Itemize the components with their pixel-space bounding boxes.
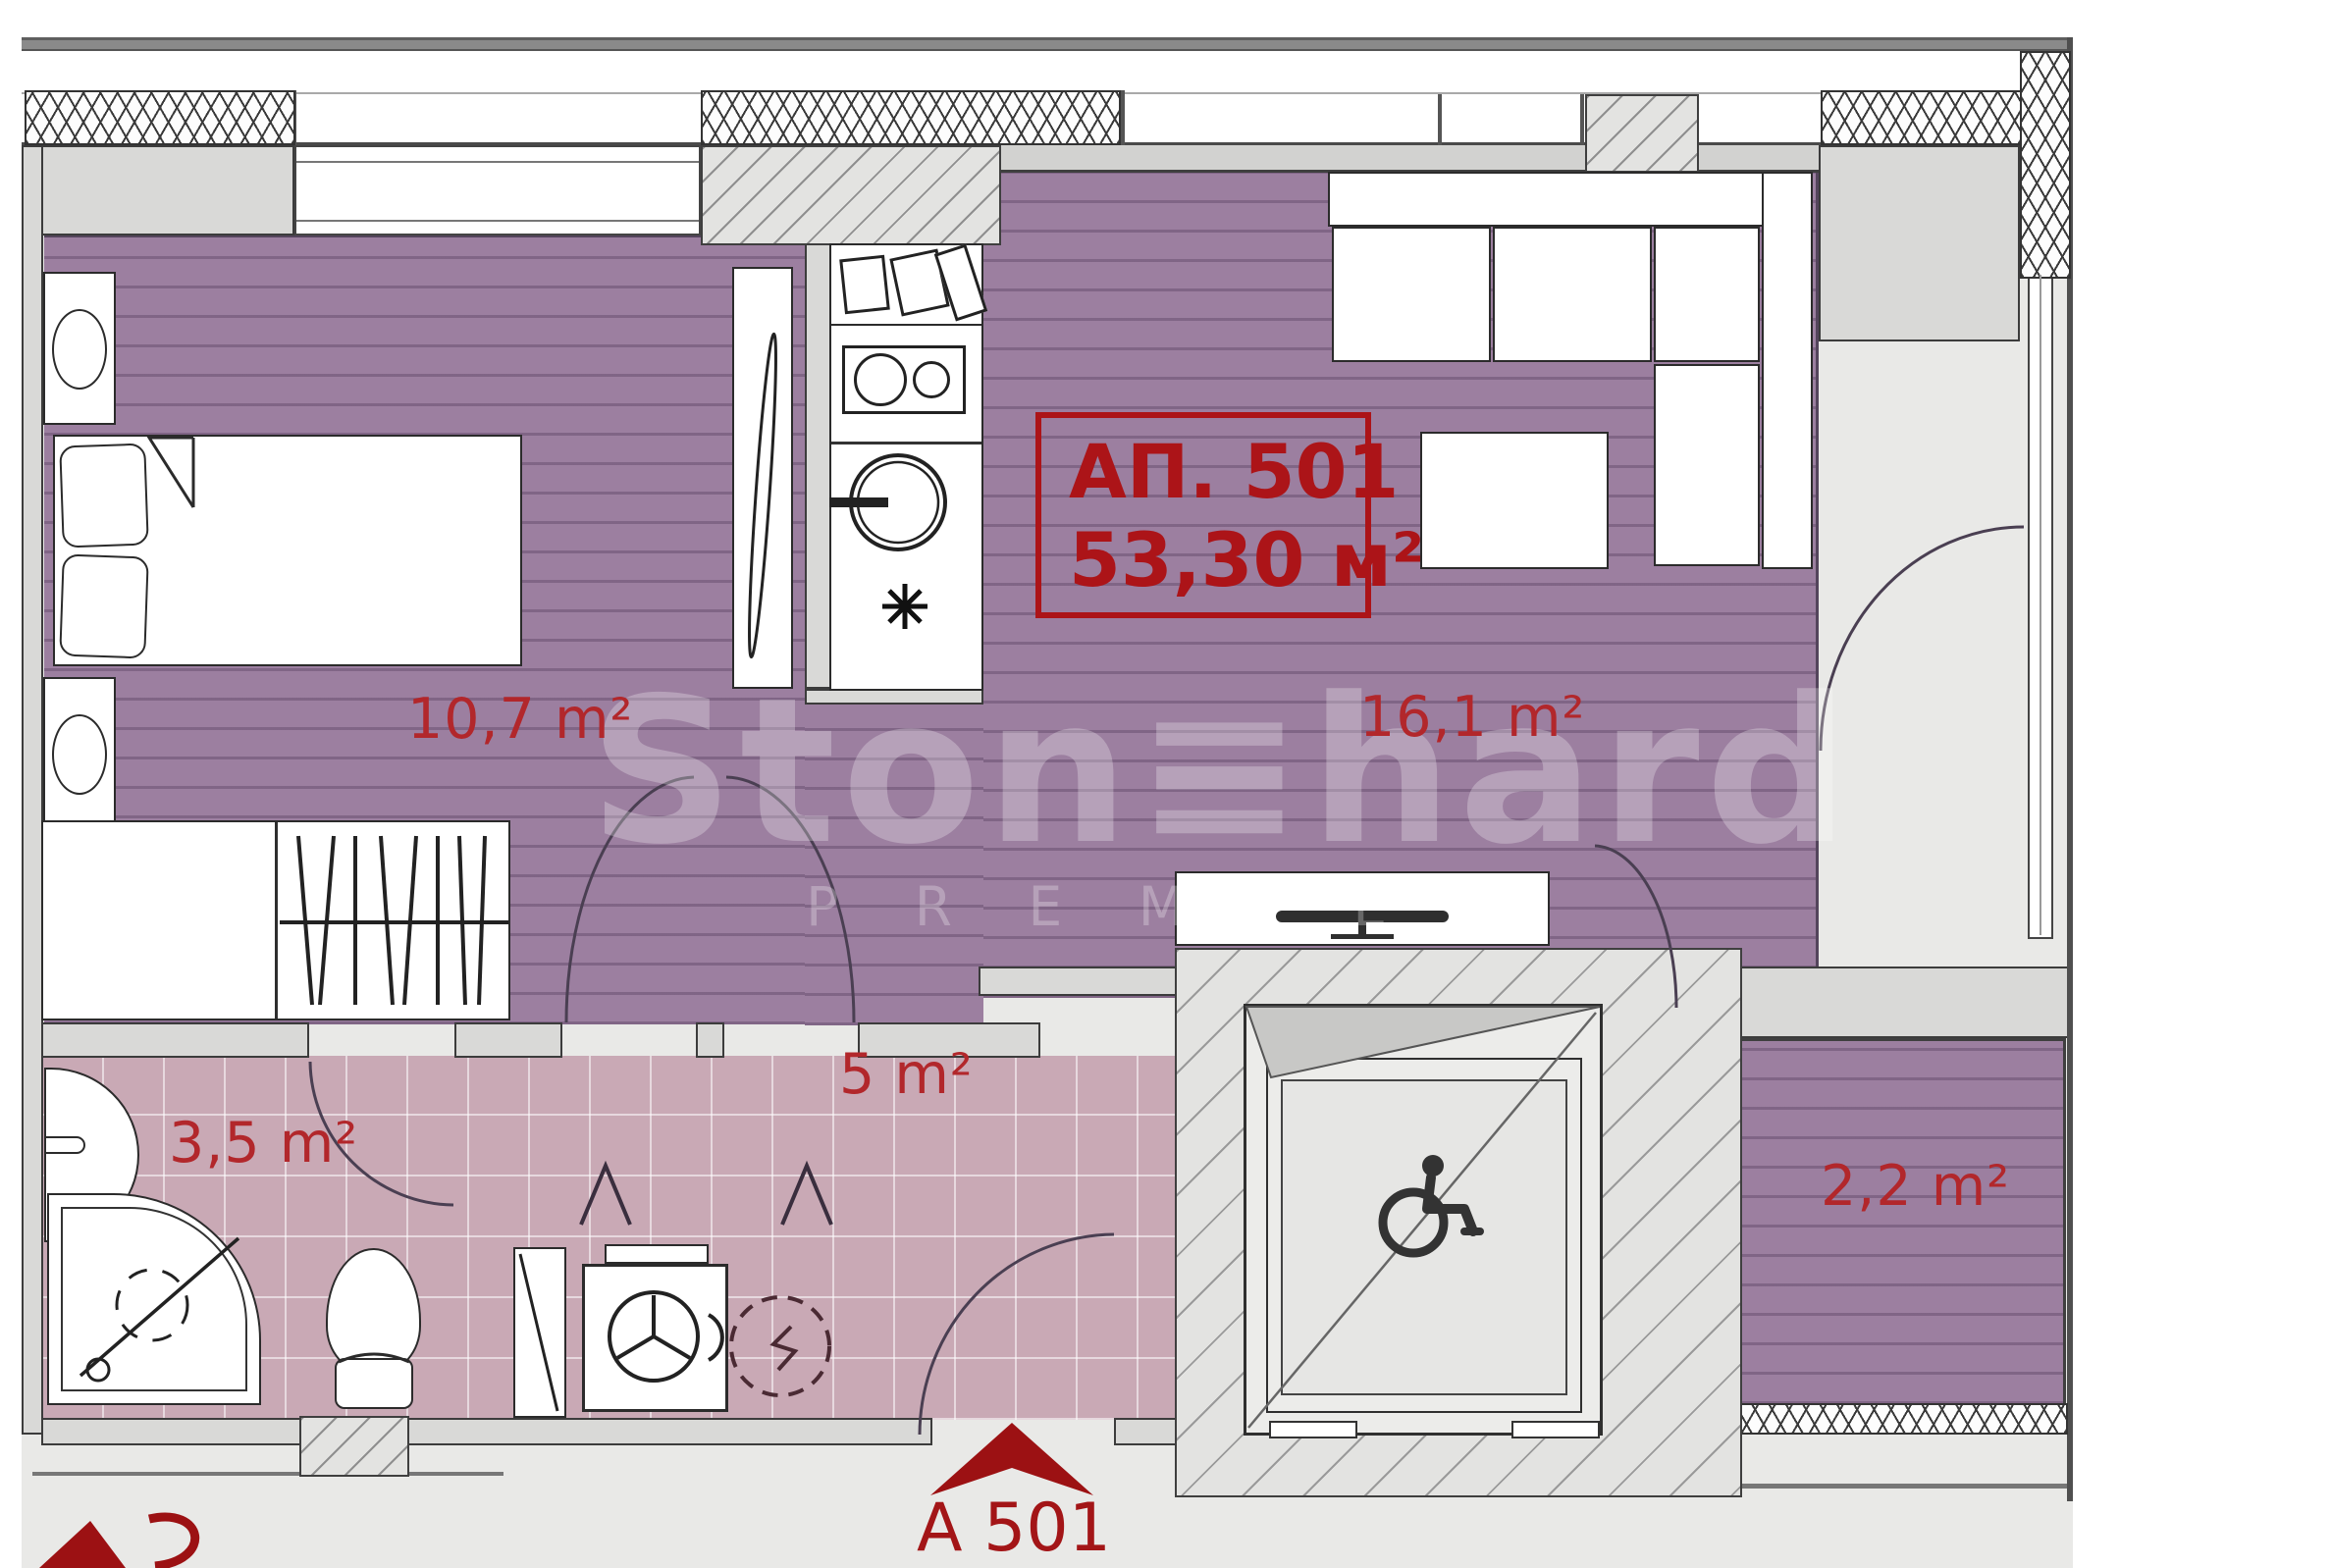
burner-star-icon [882,584,927,629]
door-arcs [310,527,2024,1435]
entrance-arrow-icon [930,1423,1093,1495]
shower-drain-icon [80,1238,238,1381]
dryer-position-icon [731,1297,829,1395]
mirror-icon [745,334,781,657]
neighbor-marker [39,1517,195,1568]
washer-drum-icon [609,1292,722,1381]
door-arc-french-window [1821,527,2024,751]
closet-panel-line [520,1254,557,1411]
door-arc-balcony [1595,846,1676,1008]
toilet-seat-line [339,1354,409,1362]
hanging-clothes-icon [280,836,508,1005]
apartment-number: АП. 501 [1069,428,1365,516]
area-label-bedroom: 10,7 m² [407,687,633,752]
apartment-area: 53,30 м² [1069,516,1365,604]
kitchen-sink-icon [829,455,945,549]
area-label-bathroom: 3,5 m² [169,1111,358,1176]
floor-plan: АП. 501 53,30 м² [0,0,2331,1568]
blanket-fold-icon [149,438,193,507]
area-label-balcony: 2,2 m² [1821,1154,2010,1219]
tv-icon [1276,911,1449,939]
area-label-living-room: 16,1 m² [1359,685,1585,750]
swing-arrow-icon [581,1166,831,1225]
elevator-door-shade [1246,1007,1600,1077]
apartment-label-box: АП. 501 53,30 м² [1035,412,1371,618]
area-label-hallway: 5 m² [839,1042,974,1107]
door-arc-bedroom [566,777,694,1022]
linework-overlay [0,0,2331,1568]
entrance-label: А 501 [911,1490,1117,1567]
door-arc-entrance [920,1234,1114,1435]
door-arc-passage [726,777,854,1022]
elevator-door-diagonal [1248,1013,1596,1428]
